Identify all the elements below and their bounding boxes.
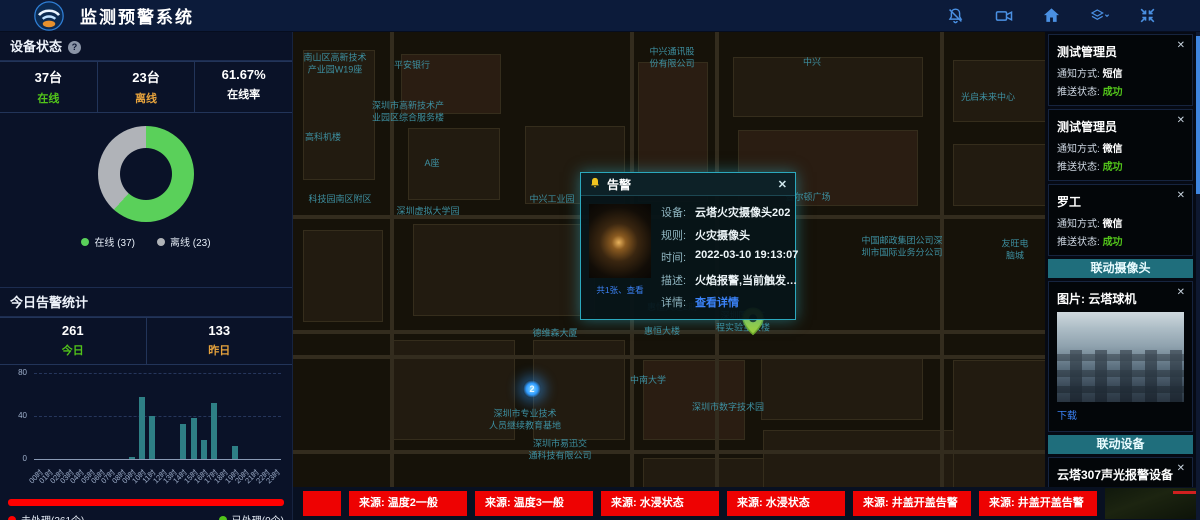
- close-icon[interactable]: [1177, 115, 1185, 126]
- map-building: [413, 224, 595, 316]
- processed-label: 已处理(0个): [232, 512, 284, 520]
- card-field: 通知方式: 短信: [1057, 65, 1184, 80]
- popup-field-value: 2022-03-10 19:13:07: [695, 249, 798, 265]
- card-field-value: 微信: [1103, 144, 1123, 155]
- popup-field-value: 火焰报警,当前触发值为...: [695, 272, 801, 288]
- card-title: 罗工: [1057, 193, 1184, 210]
- notification-card: 测试管理员通知方式: 微信推送状态: 成功: [1048, 109, 1193, 181]
- card-field-label: 推送状态:: [1057, 237, 1103, 248]
- bar: [180, 424, 186, 460]
- camera-icon[interactable]: [994, 6, 1014, 26]
- card-title: 测试管理员: [1057, 43, 1184, 60]
- device-online-donut-chart: [98, 126, 194, 222]
- today-stat-label: 昨日: [147, 342, 293, 358]
- device-stat-label: 在线率: [195, 86, 292, 102]
- card-field: 通知方式: 微信: [1057, 140, 1184, 155]
- download-link[interactable]: 下载: [1057, 407, 1077, 422]
- chevron-down-icon: [1105, 14, 1108, 16]
- grid-line: [34, 459, 281, 460]
- grid-line: [34, 373, 281, 374]
- bar: [139, 397, 145, 459]
- topbar-icon-group: [946, 6, 1184, 26]
- popup-field-label: 描述:: [661, 272, 695, 288]
- device-stat-cell: 37台在线: [0, 62, 97, 112]
- processed-legend: 已处理(0个): [219, 512, 284, 520]
- alert-source-tile[interactable]: 来源: 水浸状态: [727, 491, 845, 516]
- device-status-table: 37台在线23台离线61.67%在线率: [0, 61, 292, 113]
- map-label: 深圳市数字技术园: [692, 402, 764, 414]
- bar: [129, 457, 135, 459]
- city-map[interactable]: 2 告警 共1张、查看 设备:云塔火灾摄像头202规则:火灾摄像头时间:20: [293, 32, 1045, 520]
- alarm-popup-title: 告警: [607, 176, 631, 193]
- left-stats-panel: 设备状态 37台在线23台离线61.67%在线率 在线 (37)离线 (23) …: [0, 32, 293, 520]
- grid-line: [34, 416, 281, 417]
- alert-source-tile[interactable]: 来源: 温度3一般: [475, 491, 593, 516]
- map-label: 中兴通讯股 份有限公司: [649, 46, 694, 69]
- alarm-popup: 告警 共1张、查看 设备:云塔火灾摄像头202规则:火灾摄像头时间:2022-0…: [580, 172, 796, 320]
- close-icon[interactable]: [1177, 463, 1185, 474]
- device-stat-label: 在线: [0, 90, 97, 106]
- card-field: 推送状态: 成功: [1057, 158, 1184, 173]
- map-label: 中国邮政集团公司深 圳市国际业务分公司: [861, 235, 942, 258]
- alert-source-tile[interactable]: 来源: 井盖开盖告警: [979, 491, 1097, 516]
- map-label: 科技园南区附区: [308, 194, 371, 206]
- top-bar: 监测预警系统: [0, 0, 1200, 32]
- alarm-popup-header: 告警: [581, 173, 795, 196]
- popup-field-row: 设备:云塔火灾摄像头202: [661, 204, 801, 220]
- popup-field-label: 时间:: [661, 249, 695, 265]
- monitoring-dashboard: 监测预警系统: [0, 0, 1200, 520]
- popup-detail-row: 详情:查看详情: [661, 294, 801, 310]
- alarm-popup-fields: 设备:云塔火灾摄像头202规则:火灾摄像头时间:2022-03-10 19:13…: [661, 204, 801, 317]
- map-building: [733, 57, 923, 117]
- y-axis-tick: 40: [6, 411, 27, 420]
- popup-field-value: 云塔火灾摄像头202: [695, 204, 790, 220]
- map-label: 深圳市专业技术 人员继续教育基地: [489, 408, 561, 431]
- right-panel-scrollbar-track: [1196, 32, 1200, 520]
- linked-device-header: 联动设备: [1048, 435, 1193, 454]
- alarm-progress-legend: 未处理(261个) 已处理(0个): [8, 512, 284, 520]
- map-label: 深圳市高新技术产 业园区综合服务楼: [372, 100, 444, 123]
- map-label: 中兴: [803, 57, 821, 69]
- card-field-label: 通知方式:: [1057, 144, 1103, 155]
- section-title-text: 设备状态: [10, 34, 62, 60]
- alarm-progress-bar: [8, 499, 284, 506]
- alert-source-tile[interactable]: 来源: 水浸状态: [601, 491, 719, 516]
- camera-card-title: 图片: 云塔球机: [1057, 290, 1184, 307]
- card-field: 推送状态: 成功: [1057, 83, 1184, 98]
- card-field: 推送状态: 成功: [1057, 233, 1184, 248]
- linked-camera-header: 联动摄像头: [1048, 259, 1193, 278]
- device-stat-value: 61.67%: [195, 67, 292, 82]
- card-field-label: 通知方式:: [1057, 69, 1103, 80]
- map-label: 德维森大厦: [532, 328, 577, 340]
- alarm-bell-icon: [589, 177, 601, 192]
- map-label: 光启未来中心: [961, 92, 1015, 104]
- card-title: 测试管理员: [1057, 118, 1184, 135]
- card-field-label: 通知方式:: [1057, 219, 1103, 230]
- home-icon[interactable]: [1042, 6, 1062, 26]
- unprocessed-legend: 未处理(261个): [8, 512, 84, 520]
- map-building: [303, 230, 383, 322]
- help-icon[interactable]: [68, 41, 81, 54]
- legend-dot: [81, 238, 89, 246]
- bar: [232, 446, 238, 459]
- video-thumbnail[interactable]: [1105, 488, 1200, 519]
- alarm-snapshot-column: 共1张、查看: [589, 204, 651, 317]
- popup-field-label: 规则:: [661, 227, 695, 243]
- today-stat-value: 261: [0, 323, 146, 338]
- map-label: 南山区高新技术 产业园W19座: [303, 52, 366, 75]
- app-logo-icon: [34, 1, 64, 31]
- map-building: [953, 60, 1045, 122]
- y-axis-tick: 80: [6, 368, 27, 377]
- camera-card: 图片: 云塔球机下载: [1048, 281, 1193, 432]
- processed-dot: [219, 516, 227, 520]
- device-donut-legend: 在线 (37)离线 (23): [0, 234, 292, 249]
- bar: [211, 403, 217, 459]
- map-label: A座: [424, 158, 439, 170]
- map-label: 高科机楼: [305, 132, 341, 144]
- layers-icon[interactable]: [1090, 6, 1110, 26]
- device-status-section: 设备状态 37台在线23台离线61.67%在线率 在线 (37)离线 (23): [0, 32, 292, 249]
- device-stat-value: 37台: [0, 67, 97, 86]
- popup-close-icon[interactable]: [778, 178, 787, 191]
- device-donut-wrap: [0, 126, 292, 222]
- legend-label: 离线 (23): [170, 234, 211, 249]
- map-label: 深圳虚拟大学园: [396, 206, 459, 218]
- map-label: 平安银行: [394, 60, 430, 72]
- map-building: [408, 128, 500, 200]
- map-road: [940, 32, 944, 520]
- notification-card: 测试管理员通知方式: 短信推送状态: 成功: [1048, 34, 1193, 106]
- card-field: 通知方式: 微信: [1057, 215, 1184, 230]
- close-icon[interactable]: [1177, 287, 1185, 298]
- bell-muted-icon[interactable]: [946, 6, 966, 26]
- device-stat-cell: 23台离线: [97, 62, 195, 112]
- today-alarm-table: 261今日133昨日: [0, 317, 292, 365]
- hourly-alarm-bar-chart: 0408000时01时02时03时04时05时06时07时08时09时10时11…: [6, 367, 286, 495]
- legend-label: 在线 (37): [94, 234, 135, 249]
- device-stat-cell: 61.67%在线率: [194, 62, 292, 112]
- today-stat-value: 133: [147, 323, 293, 338]
- bottom-alert-bar: 来源: 温度2一般来源: 温度3一般来源: 水浸状态来源: 水浸状态来源: 井盖…: [293, 487, 1200, 520]
- map-building: [761, 358, 923, 420]
- map-building: [953, 360, 1045, 490]
- view-detail-link[interactable]: 查看详情: [695, 294, 739, 310]
- bar: [149, 416, 155, 459]
- device-stat-value: 23台: [98, 67, 195, 86]
- today-alarm-title: 今日告警统计: [0, 288, 292, 317]
- card-field-value: 微信: [1103, 219, 1123, 230]
- today-stat-cell: 133昨日: [146, 318, 293, 364]
- snapshot-caption-link[interactable]: 共1张、查看: [589, 284, 651, 296]
- fullscreen-icon[interactable]: [1138, 6, 1158, 26]
- today-alarm-section: 今日告警统计 261今日133昨日 0408000时01时02时03时04时05…: [0, 287, 292, 520]
- alert-color-block[interactable]: [303, 491, 341, 516]
- bar: [191, 418, 197, 459]
- card-field-label: 推送状态:: [1057, 162, 1103, 173]
- y-axis-tick: 0: [6, 454, 27, 463]
- close-icon[interactable]: [1177, 190, 1185, 201]
- page-title: 监测预警系统: [80, 3, 194, 28]
- alarm-popup-body: 共1张、查看 设备:云塔火灾摄像头202规则:火灾摄像头时间:2022-03-1…: [581, 196, 795, 325]
- today-stat-label: 今日: [0, 342, 146, 358]
- card-field-value: 成功: [1103, 237, 1123, 248]
- map-label: 中兴工业园: [529, 194, 574, 206]
- card-title: 云塔307声光报警设备: [1057, 466, 1184, 483]
- map-label: 中南大学: [630, 375, 666, 387]
- map-label: 惠恒大楼: [644, 326, 680, 338]
- right-linkage-panel: 测试管理员通知方式: 短信推送状态: 成功测试管理员通知方式: 微信推送状态: …: [1045, 32, 1200, 520]
- unprocessed-label: 未处理(261个): [21, 512, 84, 520]
- popup-field-value: 火灾摄像头: [695, 227, 750, 243]
- map-label: 友旺电脑城: [1000, 238, 1030, 261]
- map-road: [293, 355, 1045, 359]
- scrollbar-thumb[interactable]: [1196, 36, 1200, 194]
- legend-item: 在线 (37): [81, 234, 135, 249]
- card-field-value: 成功: [1103, 162, 1123, 173]
- popup-field-row: 规则:火灾摄像头: [661, 227, 801, 243]
- alert-source-tile[interactable]: 来源: 温度2一般: [349, 491, 467, 516]
- notification-card: 罗工通知方式: 微信推送状态: 成功: [1048, 184, 1193, 256]
- legend-dot: [157, 238, 165, 246]
- bar: [201, 440, 207, 459]
- close-icon[interactable]: [1177, 40, 1185, 51]
- unprocessed-dot: [8, 516, 16, 520]
- popup-field-row: 描述:火焰报警,当前触发值为...: [661, 272, 801, 288]
- popup-detail-label: 详情:: [661, 294, 695, 310]
- card-field-label: 推送状态:: [1057, 87, 1103, 98]
- map-building: [953, 144, 1045, 206]
- device-status-title: 设备状态: [0, 32, 292, 61]
- alert-source-tile[interactable]: 来源: 井盖开盖告警: [853, 491, 971, 516]
- today-stat-cell: 261今日: [0, 318, 146, 364]
- map-building: [643, 360, 745, 440]
- popup-field-label: 设备:: [661, 204, 695, 220]
- card-field-value: 成功: [1103, 87, 1123, 98]
- camera-snapshot-image[interactable]: [1057, 312, 1184, 402]
- fire-snapshot-image[interactable]: [589, 204, 651, 278]
- map-label: 深圳市易迅交 通科技有限公司: [528, 438, 591, 461]
- popup-field-row: 时间:2022-03-10 19:13:07: [661, 249, 801, 265]
- card-field-value: 短信: [1103, 69, 1123, 80]
- map-road: [293, 450, 1045, 454]
- legend-item: 离线 (23): [157, 234, 211, 249]
- device-stat-label: 离线: [98, 90, 195, 106]
- incident-cluster-dot[interactable]: 2: [523, 380, 541, 398]
